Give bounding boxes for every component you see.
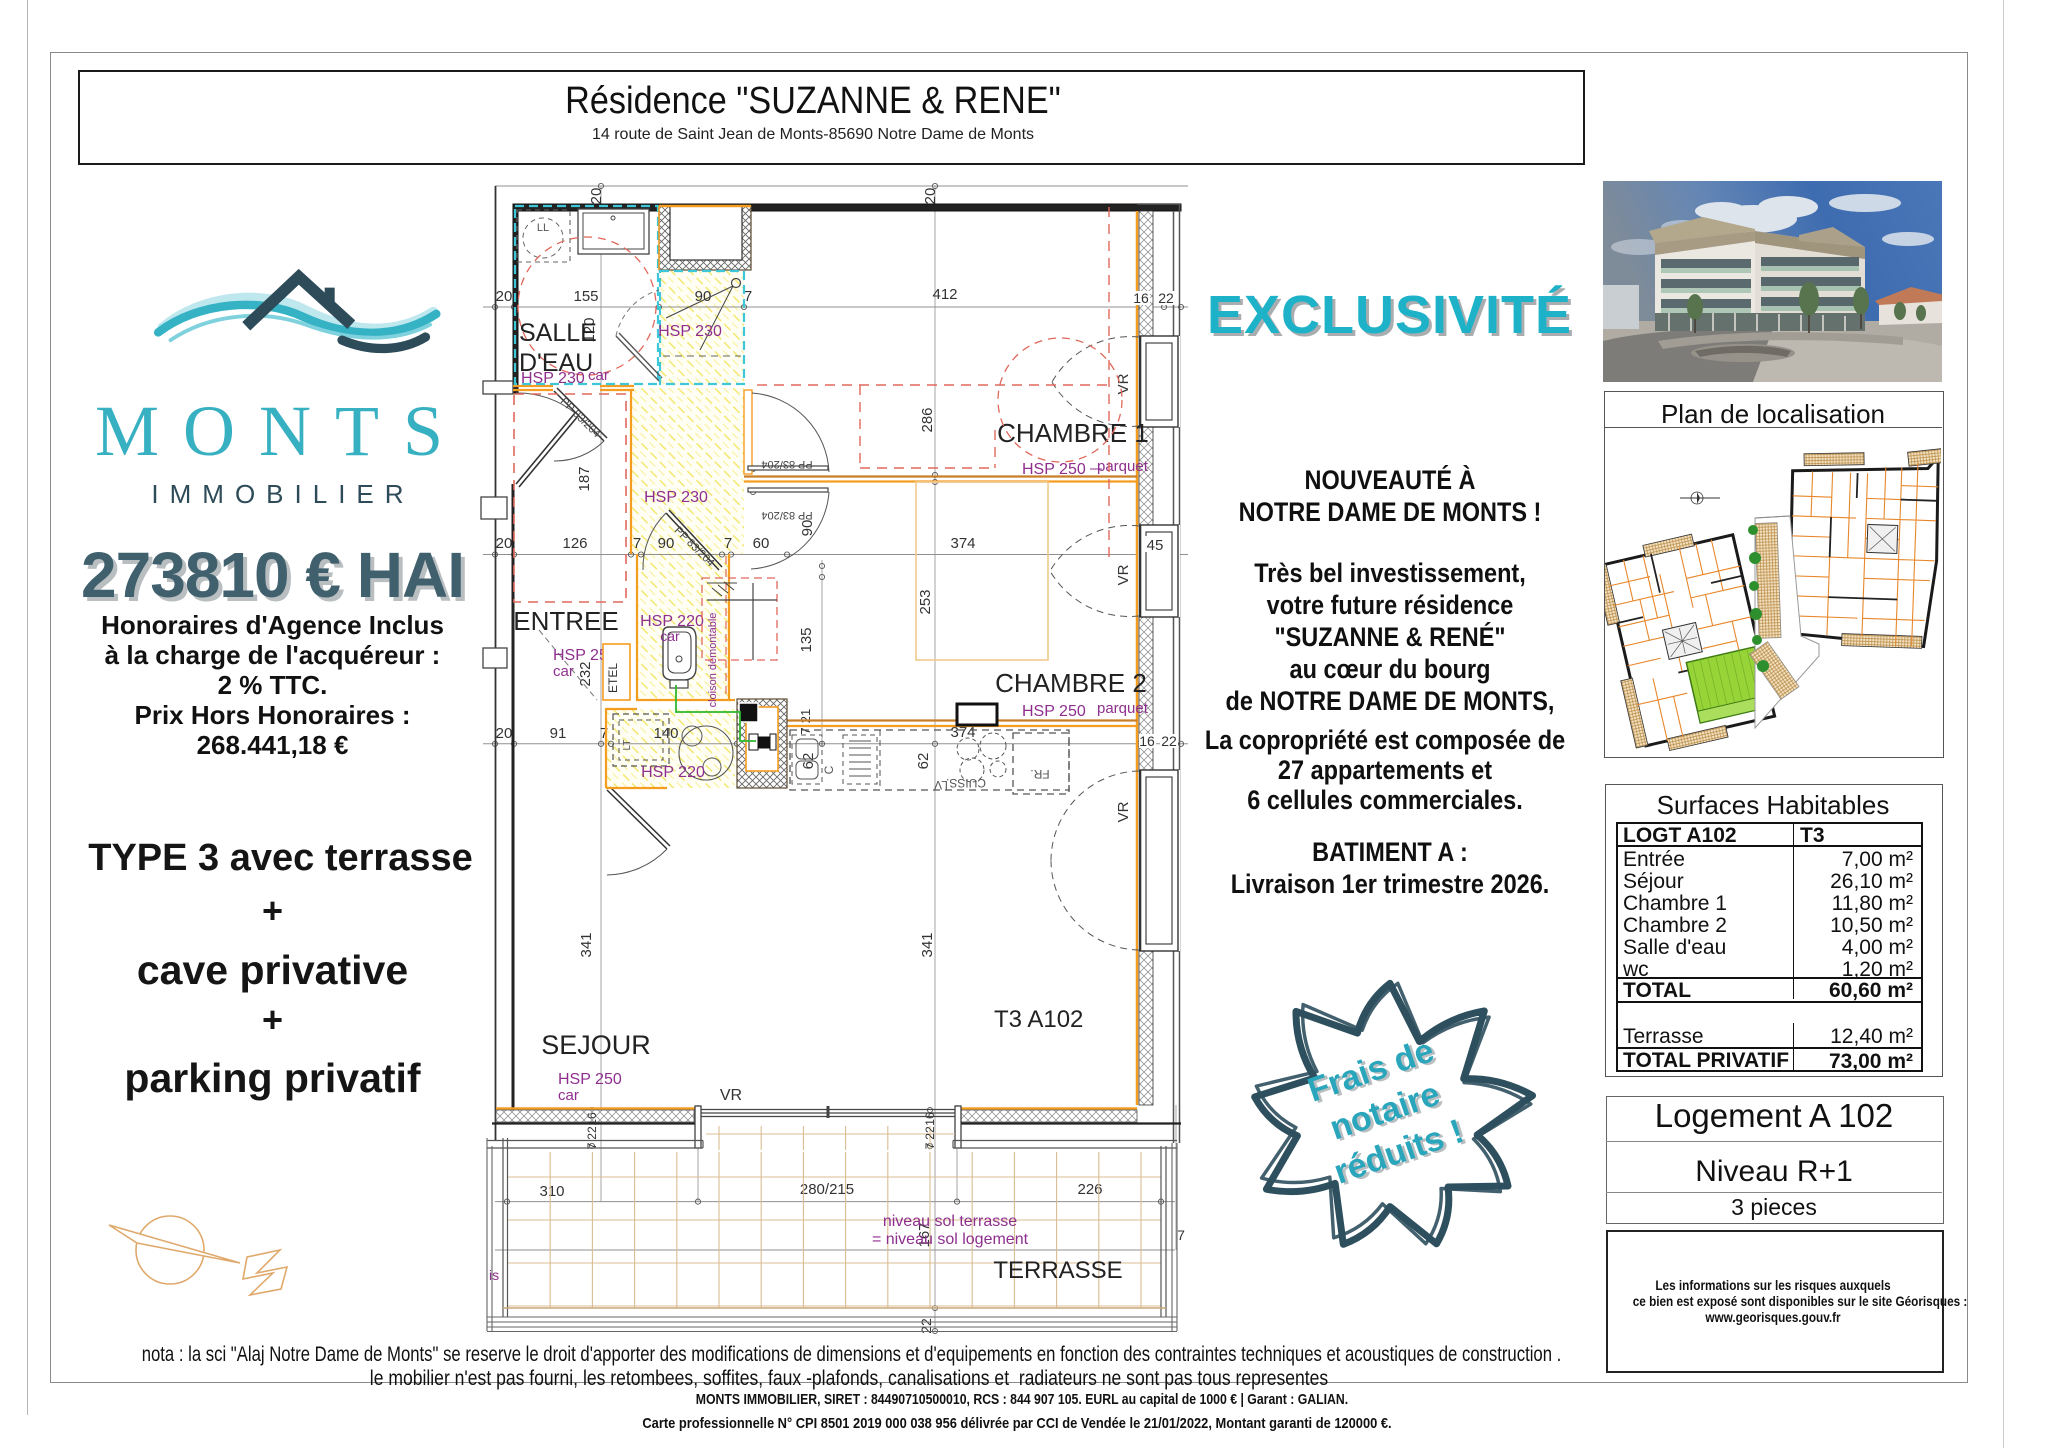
svg-text:HSP 230: HSP 230 xyxy=(644,489,708,506)
svg-text:HSP 250: HSP 250 xyxy=(1022,461,1086,478)
svg-text:20: 20 xyxy=(922,188,939,205)
svg-text:CHAMBRE 2: CHAMBRE 2 xyxy=(995,668,1147,698)
svg-text:286: 286 xyxy=(919,407,936,432)
svg-text:140: 140 xyxy=(653,725,678,742)
svg-text:20: 20 xyxy=(496,725,513,742)
svg-text:SALLE: SALLE xyxy=(519,319,597,347)
svg-text:SEJOUR: SEJOUR xyxy=(541,1030,651,1060)
svg-text:16: 16 xyxy=(585,1112,599,1126)
svg-text:FR.: FR. xyxy=(1030,767,1049,781)
svg-text:232: 232 xyxy=(577,661,594,686)
svg-text:16: 16 xyxy=(1133,290,1149,306)
svg-text:60: 60 xyxy=(753,535,770,552)
svg-text:374: 374 xyxy=(950,535,975,552)
svg-text:16: 16 xyxy=(923,1112,937,1126)
svg-text:car: car xyxy=(588,367,609,384)
svg-text:91: 91 xyxy=(550,725,567,742)
svg-text:341: 341 xyxy=(919,932,936,957)
svg-text:HSP 250: HSP 250 xyxy=(558,1071,622,1088)
svg-text:C: C xyxy=(822,765,836,774)
svg-text:VR: VR xyxy=(1115,564,1132,585)
svg-text:niveau sol terrasse: niveau sol terrasse xyxy=(883,1213,1017,1230)
svg-text:7: 7 xyxy=(585,1142,599,1149)
svg-text:155: 155 xyxy=(573,288,598,305)
svg-text:22: 22 xyxy=(585,1126,599,1140)
svg-text:PP 83/204: PP 83/204 xyxy=(761,458,812,470)
svg-text:90: 90 xyxy=(658,535,675,552)
svg-text:LT: LT xyxy=(622,740,633,751)
svg-text:car: car xyxy=(553,663,574,680)
svg-text:HSP 230: HSP 230 xyxy=(658,323,722,340)
svg-text:22: 22 xyxy=(1158,290,1174,306)
svg-text:parquet: parquet xyxy=(1097,700,1149,717)
svg-text:22: 22 xyxy=(923,1126,937,1140)
svg-text:CUISS.: CUISS. xyxy=(946,776,986,790)
svg-text:7: 7 xyxy=(724,535,732,552)
svg-text:HSP 250: HSP 250 xyxy=(1022,703,1086,720)
svg-text:is: is xyxy=(489,1267,499,1283)
svg-text:= niveau sol logement: = niveau sol logement xyxy=(872,1231,1029,1248)
svg-text:car: car xyxy=(558,1087,579,1104)
svg-text:310: 310 xyxy=(539,1183,564,1200)
svg-text:16: 16 xyxy=(1139,733,1155,749)
svg-text:90: 90 xyxy=(799,520,816,537)
svg-text:7: 7 xyxy=(798,727,813,734)
svg-text:7: 7 xyxy=(633,535,641,552)
svg-text:7: 7 xyxy=(1177,1227,1185,1243)
svg-text:LL: LL xyxy=(537,222,549,234)
svg-text:CHAMBRE 1: CHAMBRE 1 xyxy=(997,418,1149,448)
svg-text:22: 22 xyxy=(1161,733,1177,749)
svg-text:20: 20 xyxy=(496,288,513,305)
svg-text:7: 7 xyxy=(923,1142,937,1149)
svg-text:ENTREE: ENTREE xyxy=(513,606,618,636)
svg-text:HSP 230: HSP 230 xyxy=(521,370,585,387)
svg-text:ETEL: ETEL xyxy=(606,663,620,693)
svg-text:T3 A102: T3 A102 xyxy=(994,1006,1083,1033)
svg-text:126: 126 xyxy=(562,535,587,552)
svg-text:20: 20 xyxy=(496,535,513,552)
svg-text:341: 341 xyxy=(578,932,595,957)
svg-text:LV: LV xyxy=(934,778,948,792)
svg-text:135: 135 xyxy=(798,627,815,652)
svg-text:45: 45 xyxy=(1147,537,1164,554)
svg-text:187: 187 xyxy=(576,466,593,491)
svg-text:253: 253 xyxy=(917,589,934,614)
svg-text:HSP 220: HSP 220 xyxy=(641,764,705,781)
svg-text:412: 412 xyxy=(932,286,957,303)
svg-text:TERRASSE: TERRASSE xyxy=(993,1257,1122,1284)
svg-text:car: car xyxy=(660,628,680,644)
svg-text:VR: VR xyxy=(1115,801,1132,822)
svg-text:62: 62 xyxy=(915,753,932,770)
svg-text:20: 20 xyxy=(588,188,605,205)
svg-text:VR: VR xyxy=(720,1087,742,1104)
svg-text:parquet: parquet xyxy=(1097,458,1149,475)
svg-text:PP 83/204: PP 83/204 xyxy=(761,509,812,521)
svg-text:90: 90 xyxy=(695,288,712,305)
